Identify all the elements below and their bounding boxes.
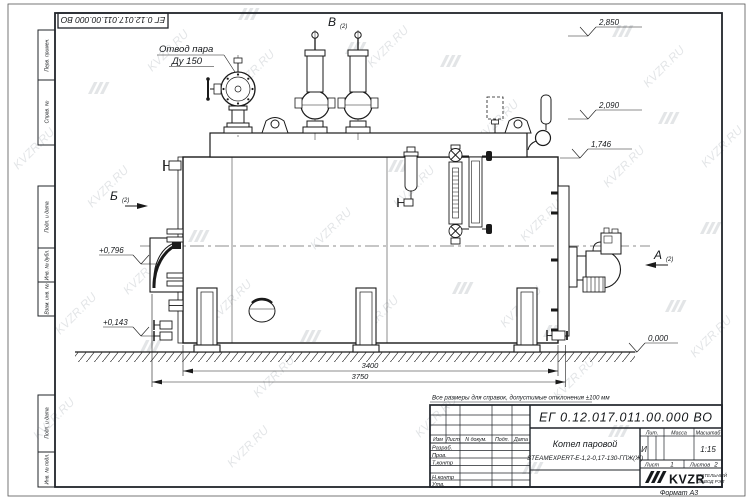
tolerance-note: Все размеры для справок, допустимые откл… xyxy=(432,395,610,402)
watermark-text: KVZR.RU xyxy=(364,23,411,70)
lit-value: И xyxy=(641,445,647,454)
row-nkontr: Н.контр xyxy=(432,475,454,481)
top-doc-number-text: ЕГ 0.12.017.011.00.000 ВО xyxy=(60,15,165,25)
sheet-value: 1 xyxy=(670,462,673,469)
row-utv: Утв. xyxy=(431,482,445,488)
view-arrow-a xyxy=(645,262,668,268)
steam-deck xyxy=(210,133,527,157)
view-label-v-sheet: (2) xyxy=(340,24,347,30)
watermark-text: KVZR.RU xyxy=(600,143,647,190)
format-label: Формат А3 xyxy=(660,490,698,497)
elevation-deck: 2,090 xyxy=(598,101,620,110)
level-mark-2090 xyxy=(568,110,642,119)
ground-line xyxy=(75,352,635,362)
row-razrab: Разраб. xyxy=(432,446,452,452)
view-label-v: В xyxy=(328,15,336,29)
callout-dn150: Ду 150 xyxy=(171,56,203,67)
mass-label: Масса xyxy=(671,431,687,437)
vent-valve xyxy=(164,160,181,171)
sheets-value: 2 xyxy=(713,462,718,469)
margin-label: Подп. и дата xyxy=(45,407,51,439)
company-line2: ЗАВОД РЭП xyxy=(698,479,725,484)
col-list: Лист xyxy=(445,437,460,443)
frame-margin-labels: Перв. примен. Справ. № Подп. и дата Инв.… xyxy=(45,38,51,484)
view-label-b: Б xyxy=(110,189,118,203)
watermark-text: KVZR.RU xyxy=(10,125,57,172)
margin-label: Справ. № xyxy=(45,100,51,123)
ground-hatch xyxy=(75,352,635,362)
sheets-label: Листов xyxy=(689,463,710,469)
watermark-text: KVZR.RU xyxy=(52,290,99,337)
watermark-text: KVZR.RU xyxy=(640,43,687,90)
support-foot xyxy=(194,288,220,352)
col-izm: Изм xyxy=(433,437,443,443)
water-level-gauge xyxy=(449,145,492,244)
manometer-siphon xyxy=(528,95,551,150)
support-foot xyxy=(514,288,540,352)
margin-label: Инв. № подл. xyxy=(45,453,51,484)
safety-valve xyxy=(338,30,378,140)
sheet-label: Лист xyxy=(644,463,660,469)
elevation-shell: 1,746 xyxy=(591,140,612,149)
safety-valve xyxy=(295,30,335,140)
view-label-b-sheet: (2) xyxy=(122,198,129,204)
elevation-ground: 0,000 xyxy=(648,334,669,343)
margin-label: Перв. примен. xyxy=(45,38,51,71)
manhole xyxy=(249,299,275,322)
elevation-burner: +0,796 xyxy=(99,246,124,255)
col-data: Дата xyxy=(513,437,528,443)
drain-valve xyxy=(154,320,172,330)
watermark-text: KVZR.RU xyxy=(687,313,734,360)
doc-number: ЕГ 0.12.017.011.00.000 ВО xyxy=(539,411,713,425)
elevation-low: +0,143 xyxy=(103,318,128,327)
lit-label: Лит. xyxy=(645,431,658,437)
watermark-text: KVZR.RU xyxy=(224,423,271,470)
level-mark-1746 xyxy=(560,149,632,158)
margin-label: Взам. инв. № xyxy=(45,283,51,315)
row-prov: Пров. xyxy=(432,453,447,459)
level-mark-0000 xyxy=(618,343,678,352)
watermark-layer: KVZR.RU KVZR.RU KVZR.RU KVZR.RU KVZR.RU … xyxy=(10,8,745,474)
dim-text-3750: 3750 xyxy=(352,372,370,381)
dim-text-3400: 3400 xyxy=(362,361,380,370)
boiler-side-view xyxy=(75,30,650,362)
product-model: STEAMEXPERT-Е-1,2-0,17-130-ГПЖ(Ж) xyxy=(527,455,643,462)
boiler-general-view-drawing: KVZR.RU KVZR.RU KVZR.RU KVZR.RU KVZR.RU … xyxy=(0,0,750,500)
product-name: Котел паровой xyxy=(553,439,618,449)
view-label-a-sheet: (2) xyxy=(666,257,673,263)
level-mark-0143 xyxy=(103,327,160,336)
row-tkontr: Т.контр xyxy=(432,461,453,467)
callout-steam-outlet: Отвод пара xyxy=(159,44,213,55)
drawing-sheet: KVZR.RU KVZR.RU KVZR.RU KVZR.RU KVZR.RU … xyxy=(0,0,750,500)
annotation-texts: Отвод пара Ду 150 Б (2) В (2) А (2) 2,85… xyxy=(99,15,673,381)
col-podp: Подп. xyxy=(495,437,509,443)
support-foot xyxy=(353,288,379,352)
watermark-text: KVZR.RU xyxy=(30,395,77,442)
elevation-top: 2,850 xyxy=(598,18,620,27)
annotations xyxy=(99,27,678,387)
view-label-a: А xyxy=(653,248,662,262)
kvzr-logo-icon xyxy=(645,471,667,483)
company-line1: КОТЕЛЬНЫЙ xyxy=(698,471,728,478)
scale-value: 1:15 xyxy=(700,445,716,454)
col-ndokum: N докум. xyxy=(465,437,486,443)
watermark-text: KVZR.RU xyxy=(307,205,354,252)
pump-motor xyxy=(569,228,621,292)
company-logo: KVZR КОТЕЛЬНЫЙ ЗАВОД РЭП xyxy=(645,471,728,487)
margin-label: Подп. и дата xyxy=(45,201,51,233)
margin-label: Инв. № дубл. xyxy=(45,250,51,281)
scale-label: Масштаб xyxy=(696,431,722,437)
blowdown-valve xyxy=(547,330,567,341)
